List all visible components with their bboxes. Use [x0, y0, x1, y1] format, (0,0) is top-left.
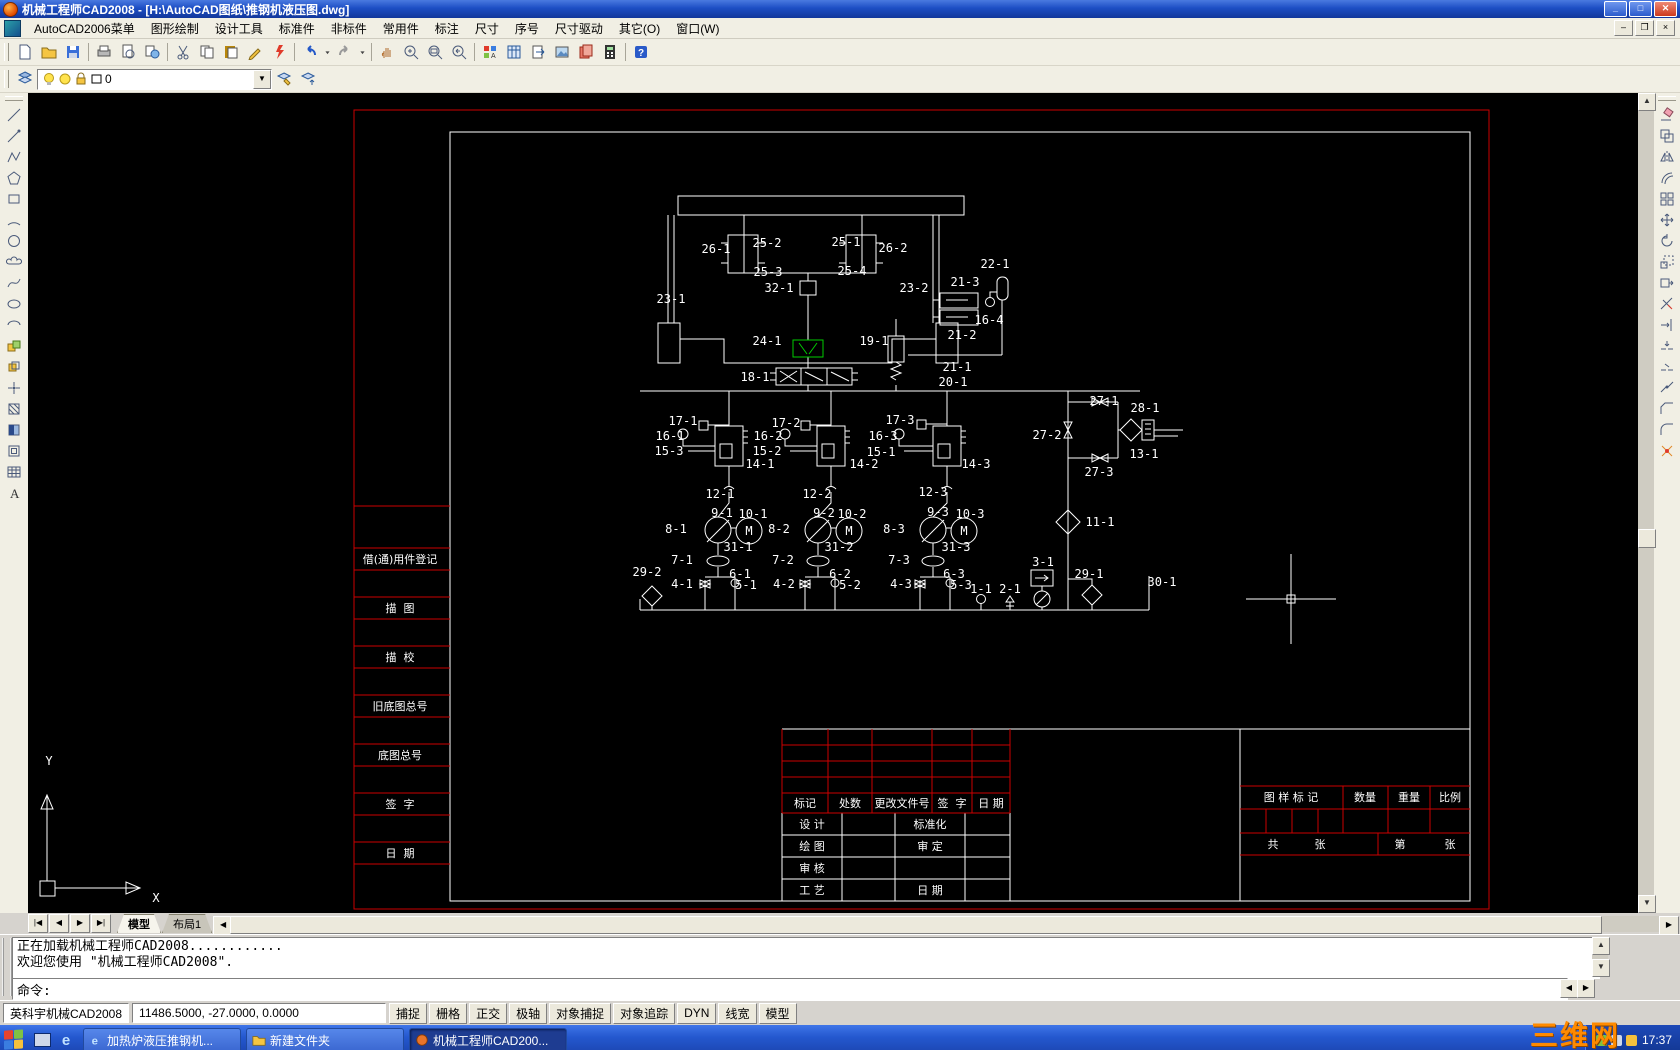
application-window: 机械工程师CAD2008 - [H:\AutoCAD图纸\推钢机液压图.dwg]… — [0, 0, 1680, 1050]
layout-tab-bar: |◀◀▶▶| 模型布局1 ◀ ▶ — [0, 913, 1680, 934]
tool-rect-icon[interactable] — [3, 188, 25, 209]
tab-nav-first[interactable]: |◀ — [28, 914, 48, 933]
schematic-label: 17-2 — [772, 417, 801, 429]
mdi-close-button[interactable]: × — [1656, 20, 1675, 36]
internet-explorer-icon[interactable]: e — [56, 1030, 76, 1050]
open-icon[interactable] — [37, 41, 61, 63]
titleblock-label: 绘 图 — [799, 838, 825, 854]
sheetset-icon[interactable] — [550, 41, 574, 63]
status-app-name: 英科宇机械CAD2008 — [3, 1003, 129, 1023]
status-toggle-栅格[interactable]: 栅格 — [429, 1003, 467, 1024]
schematic-label: 21-2 — [948, 329, 977, 341]
preview-icon[interactable] — [116, 41, 140, 63]
tool-table-icon[interactable] — [3, 461, 25, 482]
close-button[interactable]: ✕ — [1654, 1, 1677, 17]
toolbar-grip[interactable] — [4, 70, 9, 88]
swatch-icon — [89, 71, 103, 87]
schematic-label: 19-1 — [860, 335, 889, 347]
titleblock-label: 底图总号 — [378, 747, 422, 763]
schematic-label: 16-3 — [869, 430, 898, 442]
schematic-drawing — [28, 93, 1638, 913]
schematic-label: 15-2 — [753, 445, 782, 457]
modify-toolbar — [1654, 93, 1680, 913]
status-toggle-对象捕捉[interactable]: 对象捕捉 — [549, 1003, 611, 1024]
tool-break-icon[interactable] — [1656, 356, 1678, 377]
schematic-label: 28-1 — [1131, 402, 1160, 414]
tool-line-icon[interactable] — [3, 104, 25, 125]
draw-toolbar: A — [0, 93, 28, 913]
titleblock-label: 审 核 — [799, 860, 825, 876]
schematic-label: 18-1 — [741, 371, 770, 383]
svg-text:A: A — [491, 53, 496, 60]
tool-cloud-icon[interactable] — [3, 251, 25, 272]
paste-icon[interactable] — [219, 41, 243, 63]
cad-icon — [415, 1033, 429, 1047]
tool-pline-icon[interactable] — [3, 146, 25, 167]
tray-clock[interactable]: 17:37 — [1642, 1033, 1672, 1047]
tool-polygon-icon[interactable] — [3, 167, 25, 188]
schematic-label: 14-2 — [850, 458, 879, 470]
pan-icon[interactable] — [375, 41, 399, 63]
titleblock-label: 描 校 — [386, 649, 415, 665]
folder-icon — [252, 1033, 266, 1047]
menu-item-其它(O)[interactable]: 其它(O) — [611, 19, 668, 38]
title-bar: 机械工程师CAD2008 - [H:\AutoCAD图纸\推钢机液压图.dwg]… — [0, 0, 1680, 18]
tool-scale-icon[interactable] — [1656, 251, 1678, 272]
tray-icon-3[interactable] — [1626, 1035, 1637, 1046]
titleblock-label: 处数 — [839, 795, 861, 811]
tool-stretch-icon[interactable] — [1656, 272, 1678, 293]
scroll-down-icon[interactable]: ▼ — [1592, 959, 1610, 977]
schematic-label: 16-2 — [754, 430, 783, 442]
schematic-label: 29-1 — [1075, 568, 1104, 580]
tool-iblock-icon[interactable] — [3, 335, 25, 356]
app-icon — [3, 2, 18, 17]
layer-combo-value: 0 — [105, 72, 251, 86]
tab-nav-prev[interactable]: ◀ — [49, 914, 69, 933]
schematic-label: 12-2 — [803, 488, 832, 500]
tool-ray-icon[interactable] — [3, 125, 25, 146]
taskbar: e e加热炉液压推钢机...新建文件夹机械工程师CAD200... 17:37 … — [0, 1025, 1680, 1050]
titleblock-label: 工 艺 — [799, 882, 825, 898]
titleblock-label: 比例 — [1439, 789, 1461, 805]
svg-text:?: ? — [638, 48, 644, 59]
status-toggle-捕捉[interactable]: 捕捉 — [389, 1003, 427, 1024]
tab-布局1[interactable]: 布局1 — [162, 914, 212, 933]
menu-item-常用件[interactable]: 常用件 — [375, 19, 427, 38]
schematic-label: X — [152, 892, 159, 904]
tool-mtext-icon[interactable]: A — [3, 482, 25, 503]
tool-rotate-icon[interactable] — [1656, 230, 1678, 251]
schematic-label: 15-1 — [867, 446, 896, 458]
publish-icon[interactable] — [140, 41, 164, 63]
drop-icon[interactable] — [357, 41, 368, 63]
titleblock-label: 签 字 — [386, 796, 415, 812]
help-icon[interactable]: ? — [629, 41, 653, 63]
start-button[interactable] — [4, 1029, 24, 1050]
schematic-label: 24-1 — [753, 335, 782, 347]
schematic-label: 4-1 — [671, 578, 693, 590]
svg-text:A: A — [10, 486, 20, 501]
task-label: 加热炉液压推钢机... — [107, 1032, 213, 1049]
command-history-line: 欢迎您使用 "机械工程师CAD2008". — [17, 955, 1595, 971]
schematic-label: 25-3 — [754, 266, 783, 278]
taskbar-task[interactable]: 机械工程师CAD200... — [409, 1028, 567, 1050]
tool-fillet-icon[interactable] — [1656, 419, 1678, 440]
horizontal-scrollbar[interactable]: ◀ ▶ — [213, 916, 1679, 932]
status-toggle-对象追踪[interactable]: 对象追踪 — [613, 1003, 675, 1024]
schematic-label: 21-3 — [951, 276, 980, 288]
status-toggle-线宽[interactable]: 线宽 — [718, 1003, 756, 1024]
tool-extend-icon[interactable] — [1656, 314, 1678, 335]
titleblock-label: 标准化 — [914, 816, 947, 832]
menu-item-窗口(W)[interactable]: 窗口(W) — [668, 19, 727, 38]
tool-spline-icon[interactable] — [3, 272, 25, 293]
titleblock-label: 描 图 — [386, 600, 415, 616]
command-history-line: 正在加载机械工程师CAD2008............ — [17, 939, 1595, 955]
menu-item-尺寸驱动[interactable]: 尺寸驱动 — [547, 19, 611, 38]
status-toggle-模型[interactable]: 模型 — [759, 1003, 797, 1024]
menu-item-图形绘制[interactable]: 图形绘制 — [143, 19, 207, 38]
tool-copyobj-icon[interactable] — [1656, 125, 1678, 146]
taskbar-task[interactable]: e加热炉液压推钢机... — [83, 1028, 241, 1050]
schematic-label: 1-1 — [970, 583, 992, 595]
schematic-label: 31-2 — [825, 541, 854, 553]
menu-item-标准件[interactable]: 标准件 — [271, 19, 323, 38]
schematic-label: 11-1 — [1086, 516, 1115, 528]
schematic-label: 20-1 — [939, 376, 968, 388]
schematic-label: 27-3 — [1085, 466, 1114, 478]
schematic-label: 2-1 — [999, 583, 1021, 595]
tool-chamfer-icon[interactable] — [1656, 398, 1678, 419]
schematic-label: 26-1 — [702, 243, 731, 255]
taskbar-task[interactable]: 新建文件夹 — [246, 1028, 404, 1050]
tool-mblock-icon[interactable] — [3, 356, 25, 377]
schematic-label: 7-2 — [772, 554, 794, 566]
toolbar-grip[interactable] — [5, 96, 23, 101]
schematic-label: 21-1 — [943, 361, 972, 373]
schematic-label: 31-3 — [942, 541, 971, 553]
schematic-label: Y — [45, 755, 52, 767]
toolbar-separator — [167, 43, 168, 61]
schematic-label: 25-2 — [753, 237, 782, 249]
schematic-label: 17-3 — [886, 414, 915, 426]
task-label: 机械工程师CAD200... — [433, 1032, 548, 1049]
titleblock-label: 日 期 — [386, 845, 415, 861]
menu-item-尺寸[interactable]: 尺寸 — [467, 19, 507, 38]
schematic-label: M — [845, 525, 852, 537]
tool-move-icon[interactable] — [1656, 209, 1678, 230]
schematic-label: 23-1 — [657, 293, 686, 305]
menu-item-序号[interactable]: 序号 — [507, 19, 547, 38]
schematic-label: 8-2 — [768, 523, 790, 535]
titleblock-label: 图 样 标 记 — [1264, 789, 1319, 805]
show-desktop-icon[interactable] — [32, 1030, 52, 1050]
schematic-label: 13-1 — [1130, 448, 1159, 460]
chevron-down-icon[interactable]: ▼ — [253, 70, 271, 89]
schematic-label: 30-1 — [1148, 576, 1177, 588]
horizontal-scroll-thumb[interactable] — [230, 916, 1602, 934]
toolbar-separator — [474, 43, 475, 61]
tool-circle-icon[interactable] — [3, 230, 25, 251]
lock-icon — [73, 71, 87, 87]
menu-system-icon[interactable] — [4, 20, 21, 37]
titleblock-label: 张 — [1315, 836, 1326, 852]
task-label: 新建文件夹 — [270, 1032, 330, 1049]
tool-trim-icon[interactable] — [1656, 293, 1678, 314]
scroll-up-icon[interactable]: ▲ — [1592, 937, 1610, 955]
status-toggle-极轴[interactable]: 极轴 — [509, 1003, 547, 1024]
layer-manager-button[interactable] — [13, 68, 37, 90]
tool-region-icon[interactable] — [3, 440, 25, 461]
schematic-label: 25-1 — [832, 236, 861, 248]
schematic-label: 7-3 — [888, 554, 910, 566]
maximize-button[interactable]: □ — [1629, 1, 1652, 17]
schematic-label: 27-2 — [1033, 429, 1062, 441]
status-bar: 英科宇机械CAD2008 11486.5000, -27.0000, 0.000… — [0, 1000, 1680, 1025]
vertical-scrollbar[interactable]: ▲ ▼ — [1638, 93, 1654, 913]
schematic-label: 9-3 — [927, 506, 949, 518]
menu-item-设计工具[interactable]: 设计工具 — [207, 19, 271, 38]
schematic-label: 5-2 — [839, 579, 861, 591]
schematic-label: 29-2 — [633, 566, 662, 578]
undo-icon[interactable] — [298, 41, 322, 63]
dcenter-icon[interactable] — [502, 41, 526, 63]
tool-ellipse-icon[interactable] — [3, 293, 25, 314]
schematic-label: 23-2 — [900, 282, 929, 294]
tool-offset-icon[interactable] — [1656, 167, 1678, 188]
window-title: 机械工程师CAD2008 - [H:\AutoCAD图纸\推钢机液压图.dwg] — [22, 1, 1604, 18]
schematic-label: 15-3 — [655, 445, 684, 457]
styles-icon[interactable]: A — [478, 41, 502, 63]
svg-text:e: e — [92, 1035, 98, 1047]
schematic-label: 7-1 — [671, 554, 693, 566]
schematic-label: 22-1 — [981, 258, 1010, 270]
redo-icon[interactable] — [333, 41, 357, 63]
toolbar-separator — [371, 43, 372, 61]
drawing-canvas[interactable]: 26-125-225-126-225-325-423-132-123-222-1… — [28, 93, 1638, 913]
status-toggle-正交[interactable]: 正交 — [469, 1003, 507, 1024]
schematic-label: 3-1 — [1032, 556, 1054, 568]
schematic-label: 9-1 — [711, 507, 733, 519]
titleblock-label: 旧底图总号 — [373, 698, 428, 714]
schematic-label: 12-1 — [706, 488, 735, 500]
tool-breakp-icon[interactable] — [1656, 335, 1678, 356]
titleblock-label: 更改文件号 — [875, 795, 930, 811]
mdi-restore-button[interactable]: ❐ — [1635, 20, 1654, 36]
pencil-icon[interactable] — [243, 41, 267, 63]
schematic-label: 10-1 — [739, 508, 768, 520]
schematic-label: 8-3 — [883, 523, 905, 535]
titleblock-label: 日 期 — [978, 795, 1004, 811]
drop-icon[interactable] — [322, 41, 333, 63]
mdi-minimize-button[interactable]: – — [1614, 20, 1633, 36]
command-input[interactable]: 命令: — [12, 978, 1568, 1000]
save-icon[interactable] — [61, 41, 85, 63]
schematic-label: 25-4 — [838, 265, 867, 277]
ie-icon: e — [89, 1033, 103, 1047]
scroll-up-icon[interactable]: ▲ — [1638, 93, 1656, 111]
titleblock-label: 重量 — [1398, 789, 1420, 805]
layer-combo[interactable]: 0 ▼ — [37, 69, 272, 90]
titleblock-label: 张 — [1445, 836, 1456, 852]
toolbar-grip[interactable] — [1658, 96, 1676, 101]
tool-point-icon[interactable] — [3, 377, 25, 398]
layers-toolbar: 0 ▼ — [0, 66, 1680, 93]
bulb-icon — [41, 71, 55, 87]
tpalettes-icon[interactable] — [526, 41, 550, 63]
titleblock-label: 标记 — [794, 795, 816, 811]
command-scroll-left-icon[interactable]: ◀ — [1560, 979, 1578, 998]
zoomprev-icon[interactable] — [447, 41, 471, 63]
command-window: 正在加载机械工程师CAD2008............欢迎您使用 "机械工程师… — [0, 934, 1680, 1000]
schematic-label: 8-1 — [665, 523, 687, 535]
zoomwin-icon[interactable] — [423, 41, 447, 63]
titleblock-label: 数量 — [1354, 789, 1376, 805]
calc-icon[interactable] — [598, 41, 622, 63]
scroll-right-icon[interactable]: ▶ — [1659, 916, 1679, 935]
tab-模型[interactable]: 模型 — [117, 914, 161, 933]
schematic-label: 5-1 — [735, 579, 757, 591]
titleblock-label: 审 定 — [917, 838, 943, 854]
watermark: 三维网 — [1530, 1014, 1620, 1050]
schematic-label: 26-2 — [879, 242, 908, 254]
schematic-label: 17-1 — [669, 415, 698, 427]
cut-icon[interactable] — [171, 41, 195, 63]
tab-nav-last[interactable]: ▶| — [91, 914, 111, 933]
titleblock-label: 借(通)用件登记 — [363, 551, 438, 567]
layerprev-icon[interactable] — [296, 68, 320, 90]
schematic-label: M — [745, 525, 752, 537]
menu-bar: AutoCAD2006菜单图形绘制设计工具标准件非标件常用件标注尺寸序号尺寸驱动… — [0, 18, 1680, 39]
schematic-label: 16-1 — [656, 430, 685, 442]
titleblock-label: 签 字 — [938, 795, 967, 811]
command-scrollbar[interactable]: ▲ ▼ — [1592, 937, 1608, 977]
status-toggle-DYN[interactable]: DYN — [677, 1003, 716, 1024]
tool-mirror-icon[interactable] — [1656, 146, 1678, 167]
schematic-label: M — [960, 525, 967, 537]
schematic-label: 14-1 — [746, 458, 775, 470]
vertical-scroll-thumb[interactable] — [1638, 529, 1656, 548]
schematic-label: 27-1 — [1090, 395, 1119, 407]
standard-toolbar: A? — [0, 39, 1680, 66]
schematic-label: 31-1 — [724, 541, 753, 553]
circ-icon — [57, 71, 71, 87]
schematic-label: 4-2 — [773, 578, 795, 590]
tool-erase-icon[interactable] — [1656, 104, 1678, 125]
toolbar-grip[interactable] — [4, 43, 9, 61]
zoom-icon[interactable] — [399, 41, 423, 63]
titleblock-label: 设 计 — [799, 816, 825, 832]
schematic-label: 4-3 — [890, 578, 912, 590]
titleblock-label: 第 — [1395, 836, 1406, 852]
tool-explode-icon[interactable] — [1656, 440, 1678, 461]
tool-hatch-icon[interactable] — [3, 398, 25, 419]
layerset-icon[interactable] — [272, 68, 296, 90]
status-coordinates[interactable]: 11486.5000, -27.0000, 0.0000 — [132, 1003, 386, 1023]
schematic-label: 32-1 — [765, 282, 794, 294]
command-scroll-right-icon[interactable]: ▶ — [1577, 979, 1595, 998]
tool-arc-icon[interactable] — [3, 209, 25, 230]
schematic-label: 16-4 — [975, 314, 1004, 326]
matchprop-icon[interactable] — [267, 41, 291, 63]
schematic-label: 14-3 — [962, 458, 991, 470]
tool-gradient-icon[interactable] — [3, 419, 25, 440]
tab-nav-next[interactable]: ▶ — [70, 914, 90, 933]
command-history[interactable]: 正在加载机械工程师CAD2008............欢迎您使用 "机械工程师… — [12, 937, 1600, 979]
schematic-label: 9-2 — [813, 507, 835, 519]
menu-item-非标件[interactable]: 非标件 — [323, 19, 375, 38]
schematic-label: 5-3 — [950, 579, 972, 591]
copy-icon[interactable] — [195, 41, 219, 63]
titleblock-label: 共 — [1268, 836, 1279, 852]
minimize-button[interactable]: _ — [1604, 1, 1627, 17]
new-icon[interactable] — [13, 41, 37, 63]
toolbar-separator — [88, 43, 89, 61]
markup-icon[interactable] — [574, 41, 598, 63]
tool-join-icon[interactable] — [1656, 377, 1678, 398]
toolbar-separator — [625, 43, 626, 61]
menu-item-AutoCAD2006菜单[interactable]: AutoCAD2006菜单 — [26, 19, 143, 38]
scroll-down-icon[interactable]: ▼ — [1638, 895, 1656, 913]
toolbar-separator — [294, 43, 295, 61]
plot-icon[interactable] — [92, 41, 116, 63]
tool-array-icon[interactable] — [1656, 188, 1678, 209]
schematic-label: 12-3 — [919, 486, 948, 498]
schematic-label: 10-2 — [838, 508, 867, 520]
schematic-label: 10-3 — [956, 508, 985, 520]
tool-earc-icon[interactable] — [3, 314, 25, 335]
command-window-grip[interactable] — [2, 938, 12, 996]
menu-item-标注[interactable]: 标注 — [427, 19, 467, 38]
titleblock-label: 日 期 — [917, 882, 943, 898]
